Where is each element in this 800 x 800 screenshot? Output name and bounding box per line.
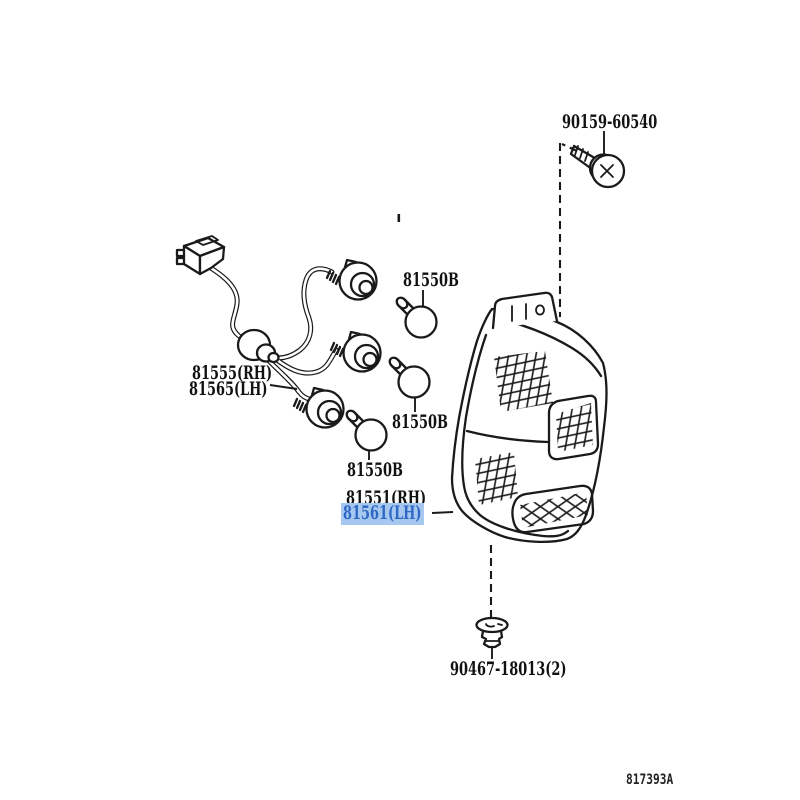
part-label-screw[interactable]: 90159-60540: [562, 113, 657, 132]
part-label-bulb-bottom[interactable]: 81550B: [347, 461, 403, 480]
lens-hatch-lower: [475, 452, 518, 505]
tick-mark: [398, 214, 401, 222]
lens-hatch-upper: [494, 351, 553, 412]
bulb-socket-1: [327, 260, 377, 300]
part-label-clip[interactable]: 90467-18013(2): [450, 660, 566, 679]
bulb-middle-drawing: [388, 356, 430, 398]
bulb-bottom-drawing: [345, 409, 387, 451]
clip-drawing: [477, 618, 508, 647]
part-label-lens-lh-highlighted[interactable]: 81561(LH): [341, 503, 424, 525]
harness-connector-drawing: [177, 236, 224, 274]
part-label-bulb-middle[interactable]: 81550B: [392, 413, 448, 432]
tail-lamp-lens-drawing: [452, 293, 607, 542]
part-label-bulb-top[interactable]: 81550B: [403, 271, 459, 290]
bulb-socket-2: [331, 332, 381, 372]
screw-dashed-guide-line: [560, 143, 577, 317]
screw-drawing: [571, 146, 624, 187]
parts-diagram-canvas: 90159-60540 81555(RH) 81565(LH) 81550B 8…: [0, 0, 800, 800]
part-label-harness-lh[interactable]: 81565(LH): [189, 380, 267, 399]
figure-code: 817393A: [626, 772, 673, 788]
diagram-line-art: [0, 0, 800, 800]
junction-socket-drawing: [238, 330, 279, 362]
bulb-top-drawing: [395, 296, 437, 338]
